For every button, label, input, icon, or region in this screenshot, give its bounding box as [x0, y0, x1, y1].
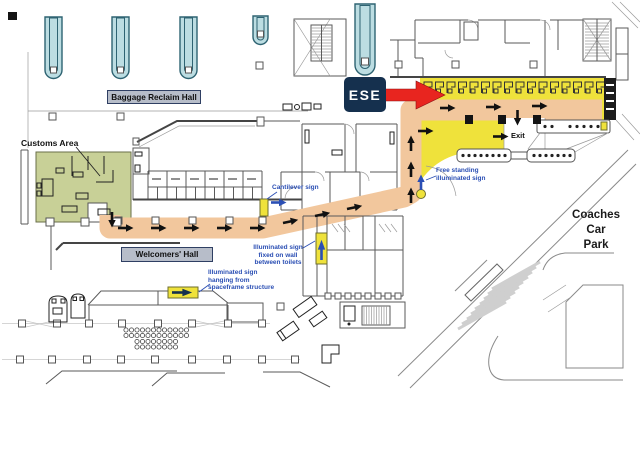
- ese-badge: ESE: [344, 77, 386, 112]
- annotation-line: Illuminated sign: [208, 269, 274, 277]
- annotation-line: spaceframe structure: [208, 284, 274, 292]
- hanging-sign-annotation: Illuminated sign hanging from spaceframe…: [208, 269, 274, 292]
- terminal-signage-floor-plan: Baggage Reclaim Hall Welcomers' Hall Cus…: [0, 0, 640, 451]
- annotation-line: hanging from: [208, 277, 274, 285]
- exit-label: Exit: [511, 131, 525, 140]
- toilets-sign-marker: [303, 233, 327, 264]
- customs-area-label: Customs Area: [21, 138, 78, 148]
- fixed-on-wall-sign-annotation: Illuminated sign fixed on wall between t…: [250, 244, 306, 267]
- coaches-car-park-label: Coaches Car Park: [558, 208, 634, 253]
- park-line: Park: [558, 238, 634, 253]
- car-line: Car: [558, 223, 634, 238]
- baggage-reclaim-hall-label: Baggage Reclaim Hall: [107, 90, 201, 104]
- toilets-block: [277, 216, 405, 363]
- annotation-line: Free standing: [436, 167, 485, 175]
- stairwell-icon: [294, 19, 346, 76]
- annotation-line: between toilets: [250, 259, 306, 267]
- annotation-line: fixed on wall: [250, 252, 306, 260]
- escalator-icon: [604, 78, 616, 120]
- baggage-carousels: [45, 4, 375, 79]
- coaches-line: Coaches: [558, 208, 634, 223]
- welcomers-hall-label: Welcomers' Hall: [121, 247, 213, 262]
- customs-area-region: [36, 152, 131, 222]
- cantilever-sign-annotation: Cantilever sign: [272, 184, 319, 192]
- annotation-line: Illuminated sign: [250, 244, 306, 252]
- coach-road: [398, 150, 636, 388]
- cantilever-sign-marker: [260, 192, 287, 216]
- free-standing-sign-annotation: Free standing illuminated sign: [436, 167, 485, 182]
- annotation-line: illuminated sign: [436, 175, 485, 183]
- plan-linework: [0, 0, 640, 451]
